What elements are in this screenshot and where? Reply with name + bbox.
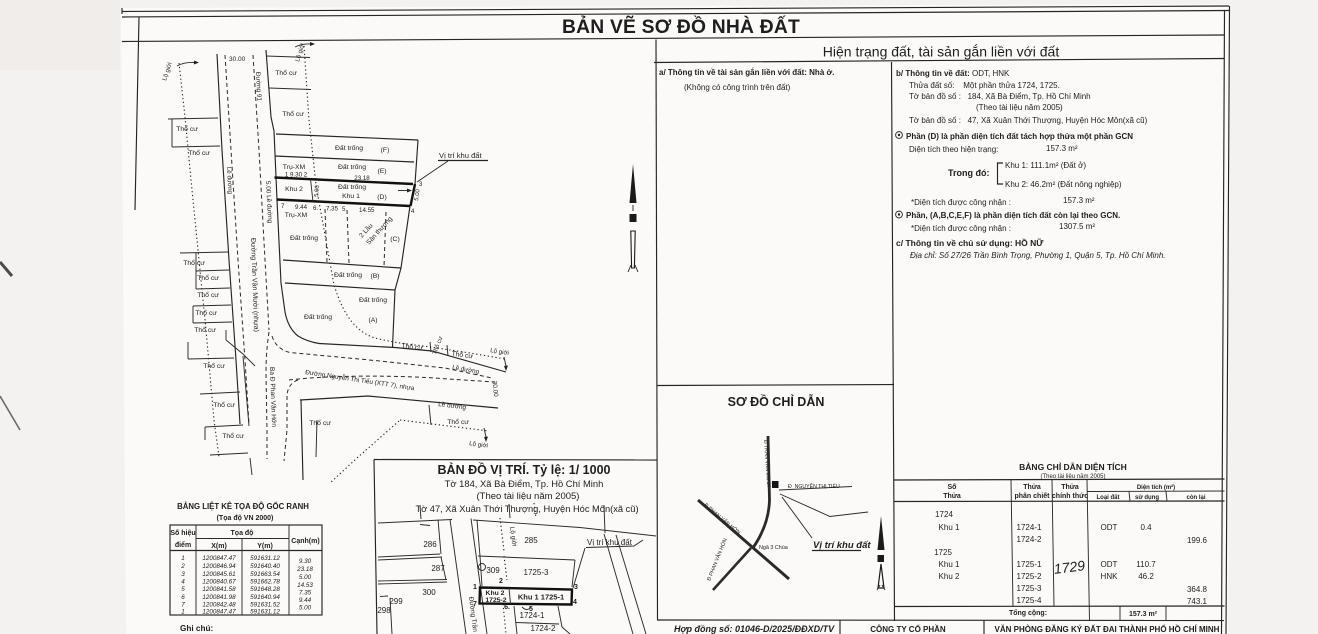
svg-text:Khu 1: Khu 1 bbox=[342, 193, 360, 200]
svg-text:1724-2: 1724-2 bbox=[1017, 535, 1042, 544]
svg-text:Đất trống: Đất trống bbox=[304, 312, 332, 321]
svg-text:CÔNG TY CỔ PHẦN: CÔNG TY CỔ PHẦN bbox=[870, 624, 946, 634]
svg-text:Đất trống: Đất trống bbox=[334, 270, 362, 279]
svg-text:2: 2 bbox=[499, 578, 503, 585]
svg-text:(B): (B) bbox=[370, 273, 379, 280]
svg-text:7: 7 bbox=[181, 602, 185, 609]
svg-text:còn lại: còn lại bbox=[1186, 495, 1205, 501]
svg-text:1724-2: 1724-2 bbox=[531, 624, 556, 633]
svg-text:Thổ cư: Thổ cư bbox=[447, 418, 469, 426]
svg-text:5.00: 5.00 bbox=[299, 574, 312, 581]
svg-text:285: 285 bbox=[524, 536, 538, 545]
svg-text:7.35: 7.35 bbox=[299, 590, 312, 597]
svg-text:Số hiệu: Số hiệu bbox=[170, 529, 195, 537]
svg-text:Tổng cộng:: Tổng cộng: bbox=[1009, 609, 1047, 617]
svg-text:4: 4 bbox=[573, 599, 577, 606]
svg-text:1200847.47: 1200847.47 bbox=[202, 555, 236, 562]
svg-text:5.00: 5.00 bbox=[299, 605, 312, 612]
svg-text:SƠ ĐỒ CHỈ DẪN: SƠ ĐỒ CHỈ DẪN bbox=[728, 394, 825, 409]
svg-text:Khu 2: Khu 2 bbox=[939, 572, 960, 581]
svg-text:591640.40: 591640.40 bbox=[250, 563, 280, 570]
svg-text:1: 1 bbox=[181, 555, 185, 562]
svg-text:1725-1: 1725-1 bbox=[1017, 560, 1042, 569]
svg-text:1725: 1725 bbox=[934, 548, 952, 557]
svg-text:Đất trống: Đất trống bbox=[290, 233, 318, 242]
svg-text:23.18: 23.18 bbox=[296, 566, 313, 573]
svg-text:4: 4 bbox=[181, 579, 185, 586]
svg-text:Thổ cư: Thổ cư bbox=[213, 401, 235, 409]
svg-text:(Theo tài liệu năm 2005): (Theo tài liệu năm 2005) bbox=[976, 103, 1063, 112]
svg-text:364.8: 364.8 bbox=[1187, 585, 1208, 594]
svg-text:1200842.48: 1200842.48 bbox=[202, 602, 236, 609]
svg-text:Thửa: Thửa bbox=[1023, 484, 1041, 491]
svg-text:1724: 1724 bbox=[935, 510, 953, 519]
svg-text:Vị trí khu đất: Vị trí khu đất bbox=[813, 540, 871, 551]
svg-text:591648.28: 591648.28 bbox=[250, 586, 280, 593]
svg-text:BẢN ĐỒ VỊ TRÍ. Tỷ lệ: 1/ 1000: BẢN ĐỒ VỊ TRÍ. Tỷ lệ: 1/ 1000 bbox=[438, 462, 611, 477]
svg-text:5: 5 bbox=[342, 206, 346, 213]
svg-text:110.7: 110.7 bbox=[1136, 560, 1156, 569]
svg-text:Thổ cư: Thổ cư bbox=[282, 110, 304, 118]
svg-text:300: 300 bbox=[422, 588, 436, 597]
svg-text:1200841.58: 1200841.58 bbox=[202, 586, 236, 593]
svg-text:Tờ 47, Xã Xuân Thới Thượng, Hu: Tờ 47, Xã Xuân Thới Thượng, Huyện Hóc Mô… bbox=[415, 504, 638, 514]
svg-text:Thổ cư: Thổ cư bbox=[183, 259, 205, 267]
svg-text:14.53: 14.53 bbox=[297, 582, 313, 589]
svg-text:BẢNG CHỈ DẪN DIỆN TÍCH: BẢNG CHỈ DẪN DIỆN TÍCH bbox=[1019, 461, 1127, 472]
svg-text:Ngã 3 Chùa: Ngã 3 Chùa bbox=[759, 545, 788, 551]
svg-text:3: 3 bbox=[181, 571, 185, 578]
svg-text:Vị trí khu đất: Vị trí khu đất bbox=[587, 538, 633, 547]
svg-text:Số: Số bbox=[948, 483, 958, 491]
svg-text:Khu 2: 46.2m² (Đất nông nghiệp: Khu 2: 46.2m² (Đất nông nghiệp) bbox=[1005, 180, 1122, 189]
svg-text:5: 5 bbox=[181, 586, 185, 593]
svg-text:591631.52: 591631.52 bbox=[250, 602, 280, 609]
svg-text:Ghi chú:: Ghi chú: bbox=[180, 624, 213, 633]
svg-text:Tờ 184, Xã Bà Điểm, Tp. Hồ Chí: Tờ 184, Xã Bà Điểm, Tp. Hồ Chí Minh bbox=[445, 478, 604, 489]
svg-text:1200841.98: 1200841.98 bbox=[202, 594, 236, 601]
svg-text:Đất trống: Đất trống bbox=[335, 143, 363, 152]
svg-text:Phần (D) là phần diện tích đất: Phần (D) là phần diện tích đất tách hợp … bbox=[906, 132, 1133, 141]
svg-text:Khu 1: Khu 1 bbox=[939, 523, 960, 532]
svg-text:Khu 1: Khu 1 bbox=[939, 560, 960, 569]
svg-text:46.2: 46.2 bbox=[1138, 572, 1154, 581]
svg-text:phân chiết: phân chiết bbox=[1014, 492, 1050, 500]
svg-text:(Không có công trình trên đất): (Không có công trình trên đất) bbox=[684, 83, 791, 92]
svg-text:Cạnh(m): Cạnh(m) bbox=[291, 538, 319, 545]
svg-text:Thổ cư: Thổ cư bbox=[197, 291, 219, 299]
svg-text:Thổ cư: Thổ cư bbox=[194, 326, 216, 334]
svg-text:Đất trống: Đất trống bbox=[338, 182, 366, 191]
svg-text:b/ Thông tin về đất: ODT, HNK: b/ Thông tin về đất: ODT, HNK bbox=[896, 69, 1010, 78]
svg-text:3: 3 bbox=[574, 584, 578, 591]
svg-text:6.: 6. bbox=[313, 205, 318, 212]
svg-text:Trụ-XM: Trụ-XM bbox=[285, 212, 308, 219]
svg-text:Đ NGUYỄN THỊ TIỂU: Đ NGUYỄN THỊ TIỂU bbox=[788, 483, 840, 490]
svg-text:chính thức: chính thức bbox=[1052, 493, 1088, 500]
svg-text:Thổ cư: Thổ cư bbox=[176, 125, 198, 133]
svg-text:BẢNG LIỆT KÊ TỌA ĐỘ GỐC RANH: BẢNG LIỆT KÊ TỌA ĐỘ GỐC RANH bbox=[177, 501, 309, 511]
svg-text:14.55: 14.55 bbox=[359, 207, 375, 214]
svg-text:Thổ cư: Thổ cư bbox=[309, 419, 331, 427]
svg-text:591663.54: 591663.54 bbox=[250, 571, 280, 578]
svg-text:Thổ cư: Thổ cư bbox=[222, 432, 244, 440]
svg-text:0.4: 0.4 bbox=[1140, 523, 1152, 532]
svg-text:(A): (A) bbox=[368, 317, 377, 324]
svg-text:5.00: 5.00 bbox=[314, 184, 321, 197]
svg-text:9.30: 9.30 bbox=[299, 558, 312, 565]
svg-text:1725-2: 1725-2 bbox=[1017, 572, 1042, 581]
svg-text:(Tọa độ VN 2000): (Tọa độ VN 2000) bbox=[217, 515, 274, 522]
svg-text:VĂN PHÒNG ĐĂNG KÝ ĐẤT ĐAI THÀN: VĂN PHÒNG ĐĂNG KÝ ĐẤT ĐAI THÀNH PHỐ HỒ C… bbox=[995, 624, 1220, 634]
svg-text:591640.94: 591640.94 bbox=[250, 594, 280, 601]
svg-text:BẢN VẼ SƠ ĐỒ NHÀ ĐẤT: BẢN VẼ SƠ ĐỒ NHÀ ĐẤT bbox=[562, 14, 800, 38]
svg-text:1724-1: 1724-1 bbox=[520, 611, 545, 620]
svg-text:Thửa đất số: Một phần thửa: Thửa đất số: Một phần thửa 1724, 1725. bbox=[909, 81, 1060, 90]
svg-text:Trong đó:: Trong đó: bbox=[948, 168, 990, 178]
svg-text:Khu 2: Khu 2 bbox=[285, 186, 303, 193]
svg-text:Đất trống: Đất trống bbox=[338, 162, 366, 171]
svg-text:1725-4: 1725-4 bbox=[1017, 596, 1042, 605]
svg-text:Hợp đồng số: 01046-D/2025/ĐĐXD: Hợp đồng số: 01046-D/2025/ĐĐXD/TV bbox=[674, 624, 835, 634]
svg-text:1725-3: 1725-3 bbox=[1017, 584, 1042, 593]
svg-text:Khu 2: Khu 2 bbox=[486, 590, 505, 597]
svg-text:(C): (C) bbox=[390, 236, 399, 243]
svg-text:309: 309 bbox=[486, 566, 500, 575]
svg-text:299: 299 bbox=[389, 597, 403, 606]
svg-text:(Theo tài liệu năm 2005): (Theo tài liệu năm 2005) bbox=[477, 491, 580, 502]
svg-text:Thổ cư: Thổ cư bbox=[203, 362, 225, 370]
svg-text:591662.78: 591662.78 bbox=[250, 579, 280, 586]
svg-text:Thổ cư: Thổ cư bbox=[195, 309, 217, 317]
svg-text:Diện tích theo hiện trạng:: Diện tích theo hiện trạng: bbox=[909, 145, 998, 154]
svg-text:HNK: HNK bbox=[1101, 572, 1119, 581]
svg-text:7: 7 bbox=[473, 601, 477, 608]
svg-text:Trụ-XM: Trụ-XM bbox=[283, 164, 306, 171]
svg-text:1200840.67: 1200840.67 bbox=[202, 579, 236, 586]
svg-text:(E): (E) bbox=[377, 168, 386, 175]
svg-text:Diện tích (m²): Diện tích (m²) bbox=[1137, 484, 1175, 491]
svg-text:Thổ cư: Thổ cư bbox=[188, 149, 210, 157]
svg-text:1725-2: 1725-2 bbox=[485, 597, 506, 604]
svg-text:*Diện tích được công nhận :: *Diện tích được công nhận : bbox=[911, 224, 1011, 233]
svg-text:Thổ cư: Thổ cư bbox=[275, 69, 297, 77]
svg-text:sử dụng: sử dụng bbox=[1135, 495, 1159, 501]
svg-text:298: 298 bbox=[377, 606, 391, 615]
svg-text:Tọa độ: Tọa độ bbox=[231, 530, 254, 537]
svg-text:*Diện tích được công nhận :: *Diện tích được công nhận : bbox=[911, 198, 1011, 207]
svg-text:(D): (D) bbox=[377, 194, 386, 201]
svg-text:1307.5 m²: 1307.5 m² bbox=[1059, 222, 1095, 231]
svg-text:157.3 m²: 157.3 m² bbox=[1063, 196, 1095, 205]
svg-text:2: 2 bbox=[180, 563, 185, 570]
svg-text:157.3 m²: 157.3 m² bbox=[1129, 611, 1158, 618]
svg-text:6.: 6. bbox=[504, 604, 510, 611]
svg-text:157.3 m²: 157.3 m² bbox=[1046, 144, 1078, 153]
svg-text:6: 6 bbox=[181, 594, 185, 601]
svg-text:(F): (F) bbox=[381, 147, 390, 154]
svg-text:Vị trí khu đất: Vị trí khu đất bbox=[439, 151, 483, 160]
svg-text:ODT: ODT bbox=[1101, 523, 1118, 532]
svg-text:1200845.61: 1200845.61 bbox=[202, 571, 235, 578]
svg-text:1: 1 bbox=[473, 584, 477, 591]
svg-text:1200847.47: 1200847.47 bbox=[202, 609, 236, 616]
svg-text:Đất trống: Đất trống bbox=[359, 295, 387, 304]
svg-text:Khu 1: 111.1m² (Đất ở): Khu 1: 111.1m² (Đất ở) bbox=[1005, 161, 1086, 170]
svg-text:1200846.94: 1200846.94 bbox=[202, 563, 236, 570]
svg-text:9.44: 9.44 bbox=[299, 597, 312, 604]
svg-text:Thửa: Thửa bbox=[943, 493, 961, 500]
svg-text:c/ Thông tin về chủ sử dụng: H: c/ Thông tin về chủ sử dụng: HỒ NỮ bbox=[896, 237, 1044, 248]
svg-text:a/ Thông tin về tài sản gắn li: a/ Thông tin về tài sản gắn liền với đất… bbox=[659, 68, 834, 77]
svg-text:Thổ cư: Thổ cư bbox=[197, 274, 219, 282]
svg-text:Lề đường: Lề đường bbox=[225, 167, 233, 195]
svg-text:287: 287 bbox=[431, 564, 445, 573]
svg-text:1: 1 bbox=[181, 609, 185, 616]
svg-text:điểm: điểm bbox=[175, 541, 191, 549]
svg-text:7.35: 7.35 bbox=[326, 206, 339, 213]
svg-text:Tờ bản đồ số : 184, Xã Bà Đi: Tờ bản đồ số : 184, Xã Bà Điểm, Tp. Hồ C… bbox=[909, 92, 1091, 101]
svg-text:30.00: 30.00 bbox=[229, 56, 246, 63]
svg-text:Phần, (A,B,C,E,F) là phần diện: Phần, (A,B,C,E,F) là phần diện tích đất … bbox=[906, 211, 1120, 220]
svg-text:Y(m): Y(m) bbox=[257, 543, 273, 550]
svg-text:591631.12: 591631.12 bbox=[250, 609, 280, 616]
svg-text:Tờ bản đồ số : 47, Xã Xuân T: Tờ bản đồ số : 47, Xã Xuân Thới Thượng, … bbox=[909, 116, 1148, 125]
svg-text:286: 286 bbox=[423, 540, 437, 549]
svg-text:X(m): X(m) bbox=[211, 543, 227, 550]
svg-text:7: 7 bbox=[281, 203, 285, 210]
svg-text:Khu 1 1725-1: Khu 1 1725-1 bbox=[518, 593, 564, 602]
svg-text:9.44: 9.44 bbox=[295, 204, 308, 211]
svg-text:Địa chỉ: Số 27/26 Trần Bình Tr: Địa chỉ: Số 27/26 Trần Bình Trọng, Phườn… bbox=[910, 251, 1166, 260]
svg-text:Hiện trạng đất, tài sản gắn li: Hiện trạng đất, tài sản gắn liền với đất bbox=[823, 44, 1060, 60]
svg-text:743.1: 743.1 bbox=[1187, 597, 1208, 606]
svg-text:1724-1: 1724-1 bbox=[1017, 523, 1042, 532]
svg-text:Thửa: Thửa bbox=[1061, 484, 1079, 491]
svg-text:1725-3: 1725-3 bbox=[524, 568, 549, 577]
svg-text:Loại đất: Loại đất bbox=[1096, 494, 1119, 501]
svg-text:199.6: 199.6 bbox=[1187, 536, 1208, 545]
svg-text:591631.12: 591631.12 bbox=[250, 555, 280, 562]
svg-text:ODT: ODT bbox=[1101, 560, 1118, 569]
